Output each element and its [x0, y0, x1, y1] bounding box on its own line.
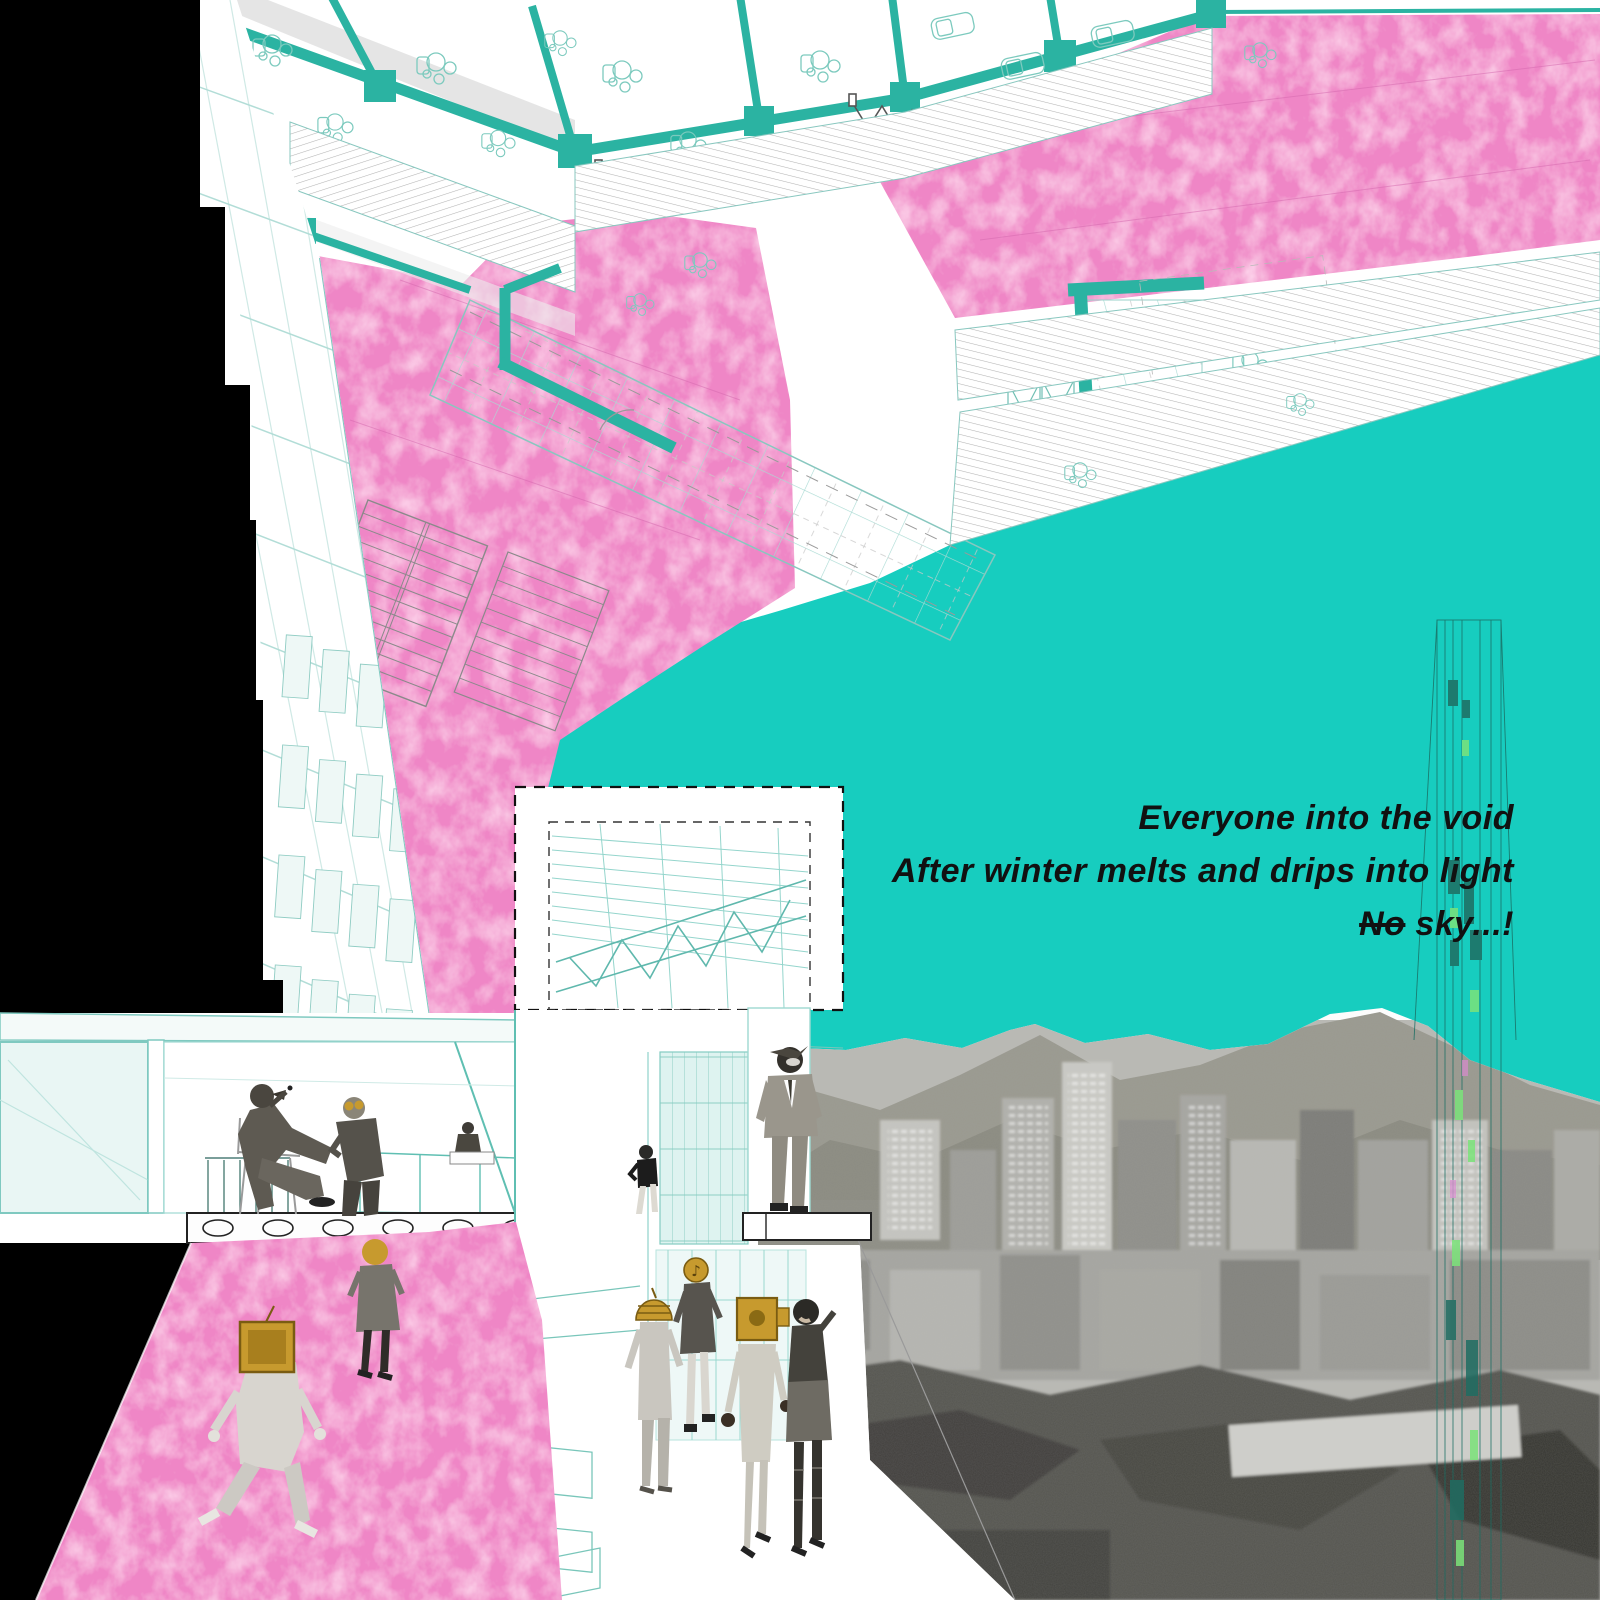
poem-line-3: No sky...!: [892, 898, 1514, 951]
svg-text:♪: ♪: [691, 1262, 701, 1280]
poem-strike-word: No: [1359, 905, 1405, 943]
collage-board: ♪ Everyone into the void After: [0, 0, 1600, 1600]
ledge-box: [743, 1213, 871, 1240]
poem-line-1: Everyone into the void: [892, 792, 1514, 845]
poem-line-3-rest: sky...!: [1405, 905, 1514, 943]
poem-text: Everyone into the void After winter melt…: [892, 792, 1514, 951]
poem-line-2: After winter melts and drips into light: [892, 845, 1514, 898]
